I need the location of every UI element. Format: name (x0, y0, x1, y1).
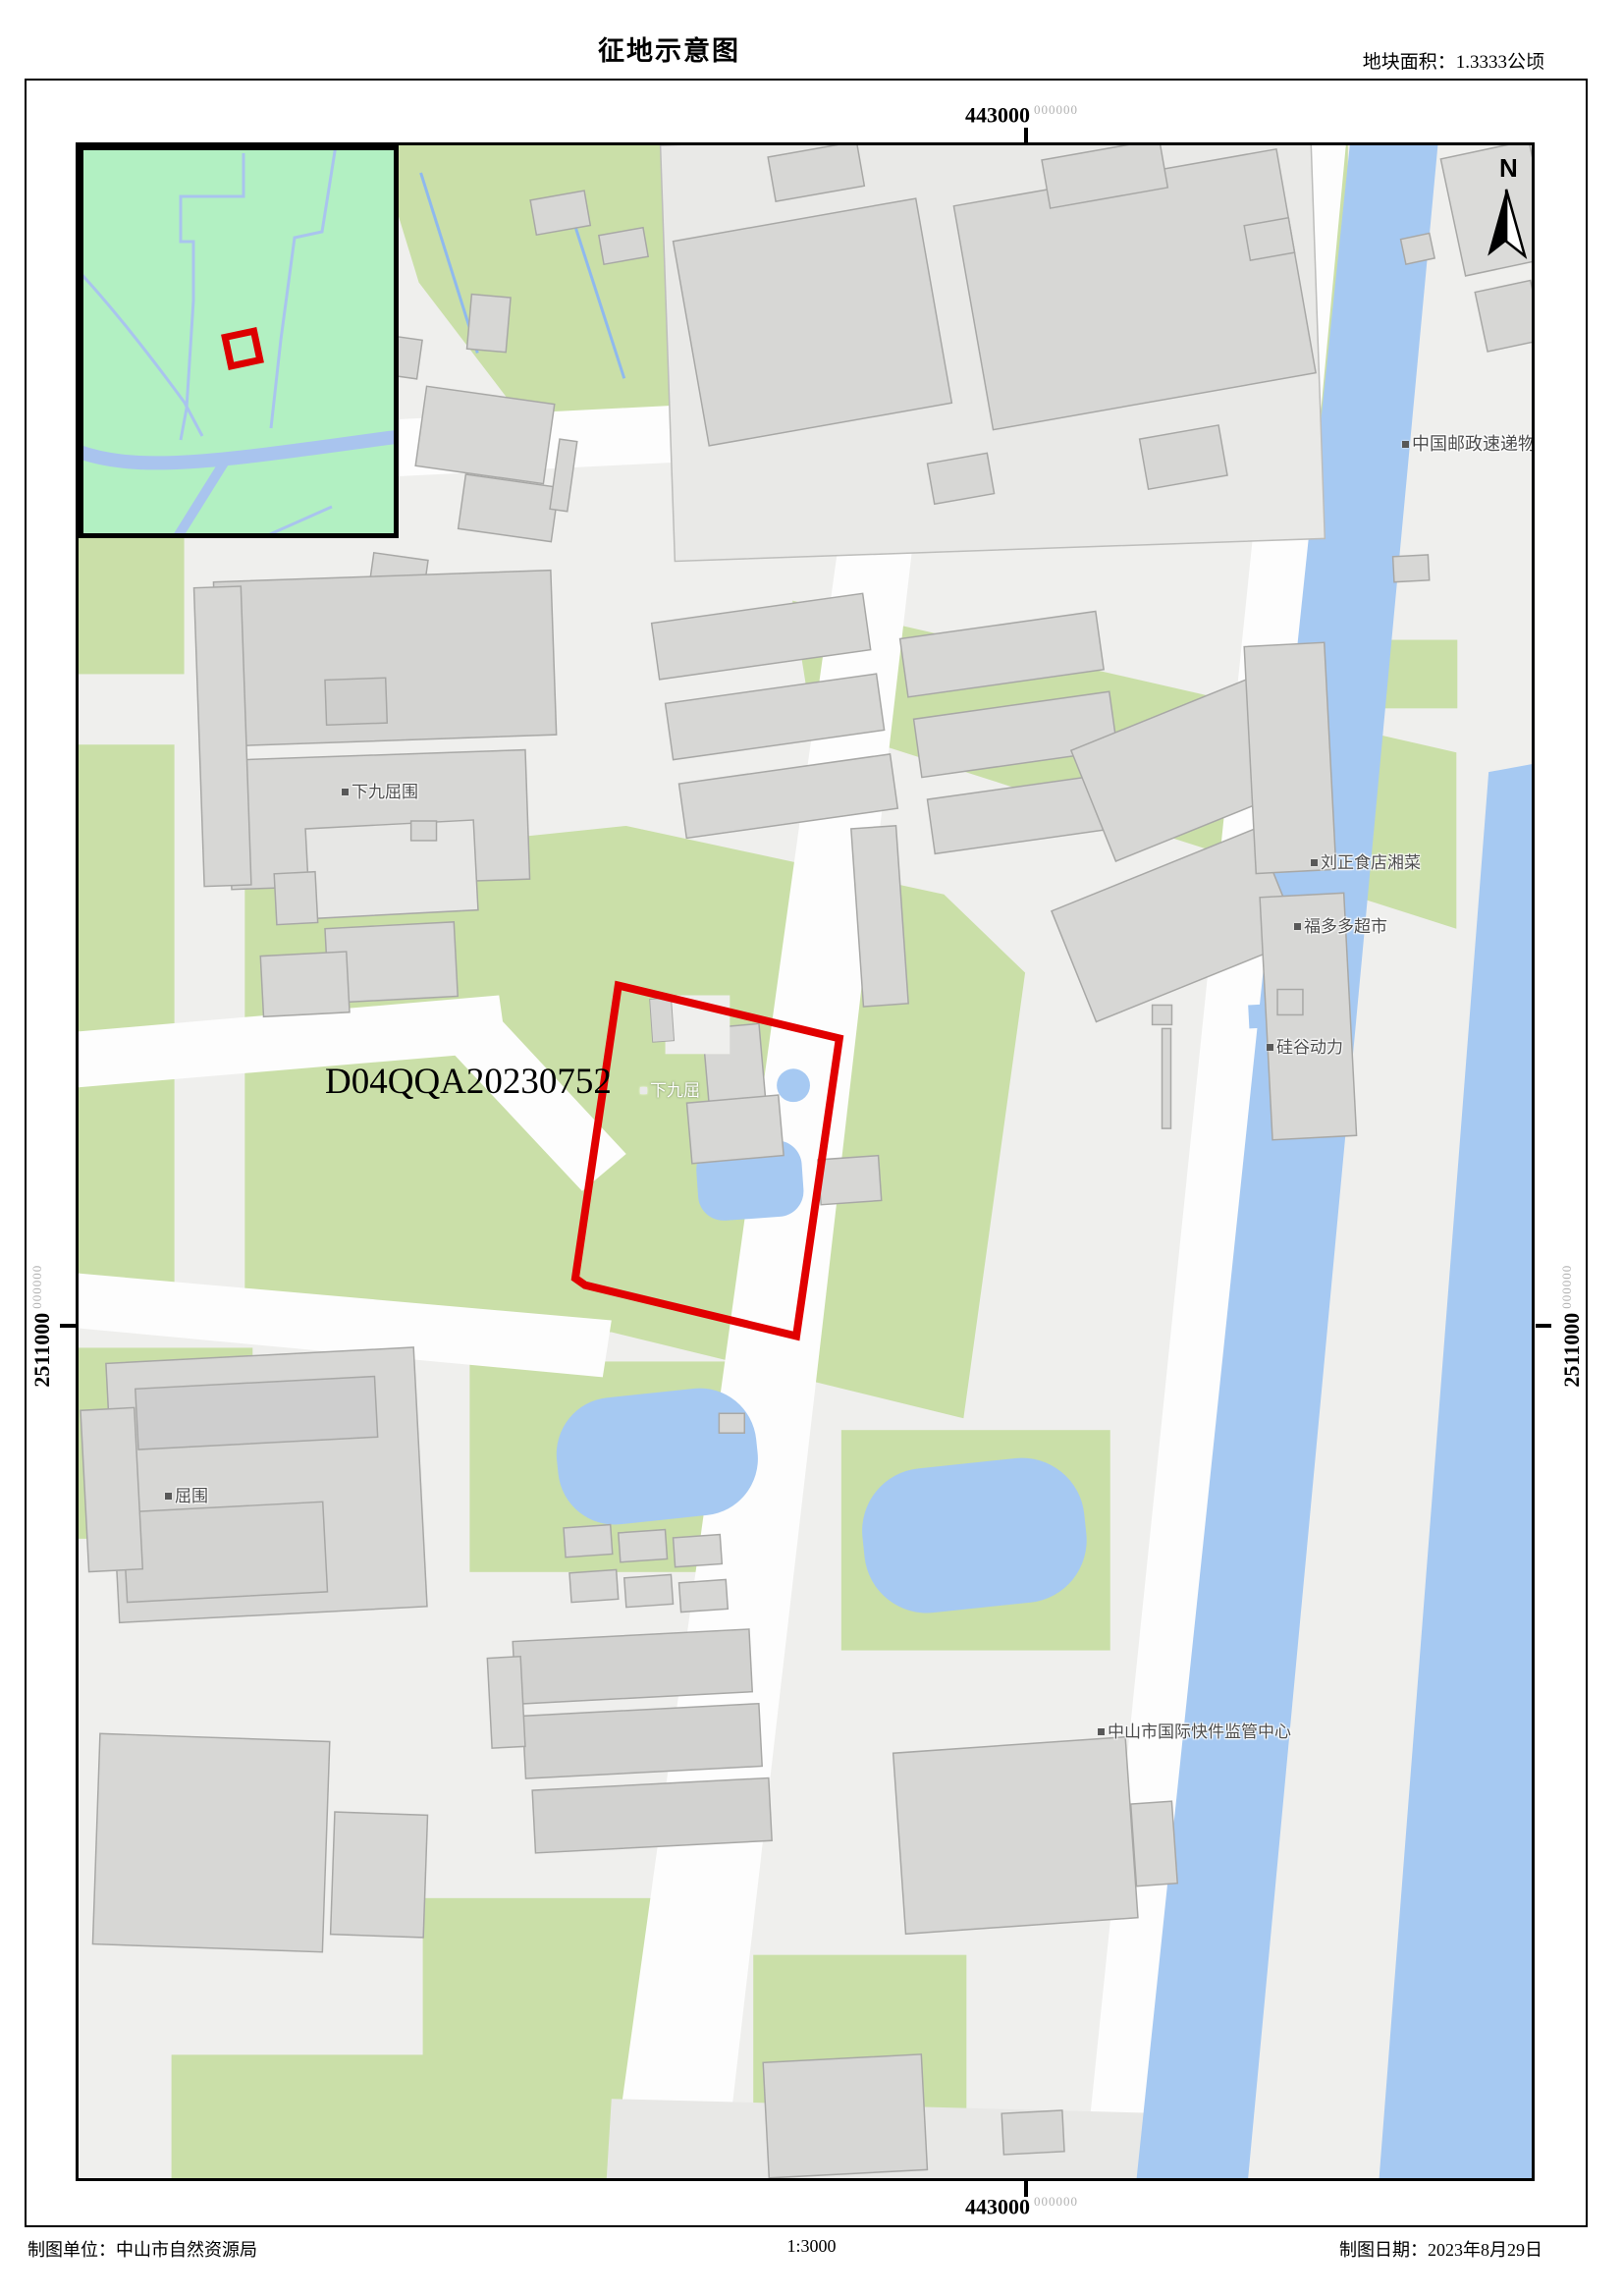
label-express-center: 中山市国际快件监管中心 (1098, 1718, 1291, 1742)
poi-marker-icon (1098, 1728, 1105, 1735)
page-title: 征地示意图 (0, 29, 1338, 68)
coord-label-right: 2511000000000 (1559, 1252, 1585, 1399)
neatline-left (25, 79, 27, 2227)
plot-area-label: 地块面积：1.3333公顷 (1363, 47, 1544, 74)
poi-marker-icon (1311, 859, 1318, 866)
label-guigu-power: 硅谷动力 (1267, 1033, 1343, 1058)
coord-tick-top (1024, 128, 1028, 143)
coord-tick-bottom (1024, 2181, 1028, 2197)
main-map: 下九屈围 刘正食店湘菜 福多多超市 硅谷动力 中国邮政速递物 下九屈 屈围 中山… (76, 142, 1535, 2181)
coord-sup-top: 000000 (1034, 102, 1078, 117)
poi-marker-icon (1267, 1044, 1273, 1051)
poi-marker-icon (1402, 441, 1409, 448)
coord-label-bottom: 443000000000 (965, 2194, 1078, 2219)
poi-marker-icon (342, 789, 349, 795)
neatline-bottom (25, 2225, 1588, 2227)
label-parcel-name: 下九屈 (640, 1076, 700, 1101)
coord-sup-bottom: 000000 (1034, 2194, 1078, 2209)
label-china-post: 中国邮政速递物 (1402, 430, 1535, 456)
map-sheet: { "header": { "title": "征地示意图", "area_la… (0, 0, 1623, 2296)
coord-label-left: 2511000000000 (29, 1252, 55, 1399)
north-label: N (1499, 153, 1518, 184)
coord-sup-left: 000000 (29, 1265, 44, 1309)
label-xiajiuquwei: 下九屈围 (342, 778, 418, 802)
inset-locator-map (79, 145, 399, 538)
neatline-top (25, 79, 1588, 81)
coord-tick-right (1536, 1324, 1551, 1328)
label-fuduoduo-market: 福多多超市 (1294, 912, 1387, 937)
label-liuzheng-restaurant: 刘正食店湘菜 (1311, 848, 1421, 873)
coord-sup-right: 000000 (1559, 1265, 1574, 1309)
parcel-code-label: D04QQA20230752 (325, 1061, 612, 1103)
poi-marker-icon (640, 1087, 647, 1094)
neatline-right (1586, 79, 1588, 2227)
poi-marker-icon (1294, 923, 1301, 930)
label-quwei: 屈围 (165, 1482, 208, 1506)
poi-marker-icon (165, 1493, 172, 1500)
footer-date: 制图日期：2023年8月29日 (1339, 2236, 1542, 2262)
coord-tick-left (60, 1324, 76, 1328)
coord-label-top: 443000000000 (965, 102, 1078, 128)
